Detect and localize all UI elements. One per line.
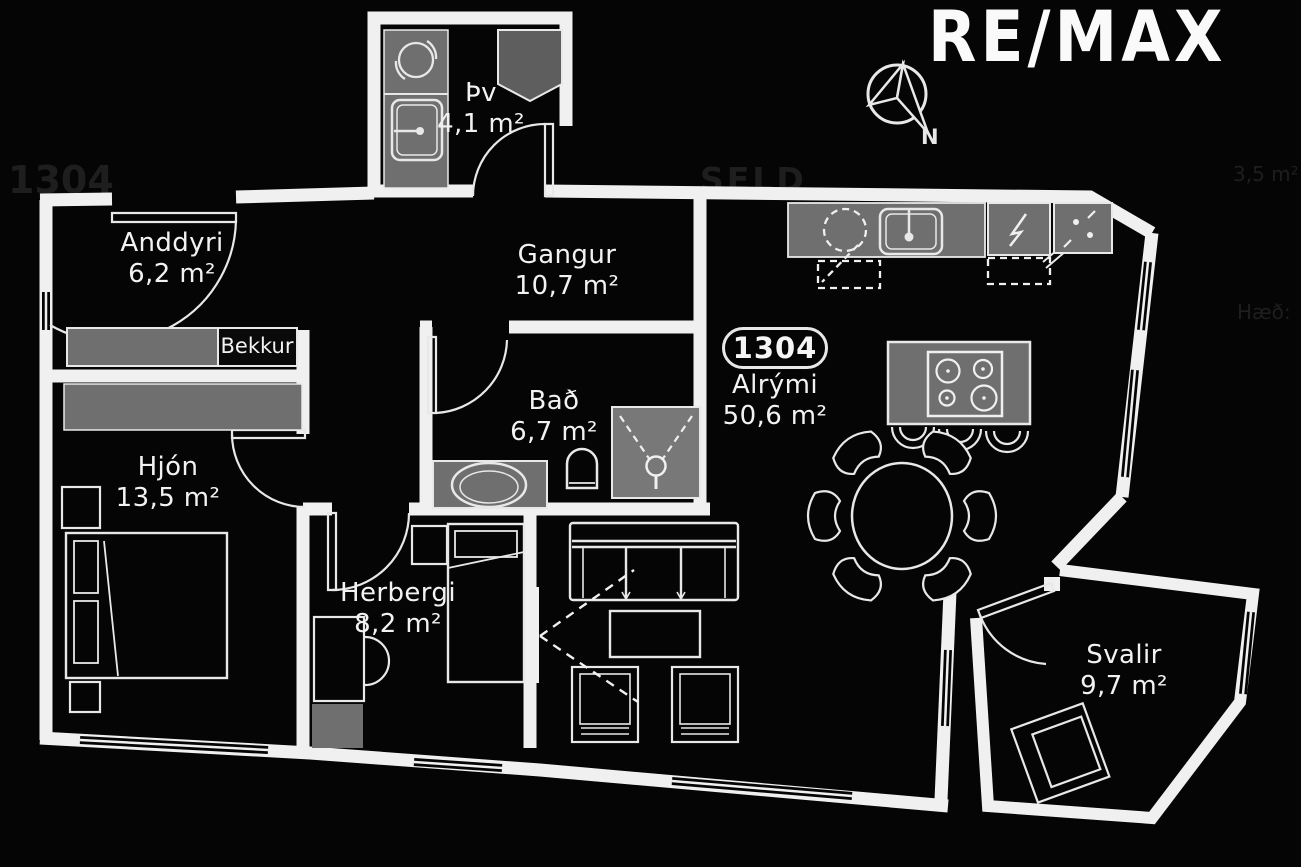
living-room-furniture	[533, 523, 738, 742]
oven	[988, 203, 1050, 255]
bedroom-cabinet	[312, 704, 363, 748]
bedroom-furniture	[312, 524, 524, 748]
bedroom-door-leaf	[328, 513, 336, 590]
laundry-wardrobe	[498, 30, 562, 101]
laundry-door-arc	[473, 124, 545, 196]
compass-north-label: N	[921, 125, 939, 149]
tv	[533, 587, 539, 683]
master-bedroom-furniture	[62, 487, 227, 712]
entry-door-leaf	[112, 213, 236, 222]
floor-plan-drawing	[0, 0, 1301, 867]
single-bed	[448, 524, 524, 682]
bathroom-door-arc	[436, 340, 507, 413]
balcony-door-leaf	[978, 583, 1054, 618]
compass-icon	[868, 64, 928, 133]
sofa	[570, 523, 738, 600]
kitchen-island	[888, 342, 1030, 452]
remax-logo: RE/MAX	[928, 0, 1227, 78]
bench-label: Bekkur	[221, 334, 294, 358]
vanity-sink	[433, 461, 547, 508]
master-door-leaf	[232, 430, 305, 438]
laundry-sink	[392, 100, 442, 160]
master-door-arc	[232, 434, 305, 507]
appliance	[1054, 203, 1112, 253]
floor-plan-page: 1304 SELD 3,5 m² Hæð:	[0, 0, 1301, 867]
balcony-walls	[976, 570, 1253, 818]
toilet	[567, 449, 597, 488]
shower	[612, 407, 700, 498]
master-wardrobe	[64, 384, 302, 430]
nightstand	[70, 682, 100, 712]
coffee-table	[610, 611, 700, 657]
desk	[314, 617, 364, 701]
desk-chair	[365, 637, 389, 685]
dining-table	[852, 463, 952, 569]
unit-number-badge: 1304	[722, 327, 828, 369]
armchair	[572, 667, 638, 742]
entry-door-arc	[50, 220, 236, 342]
nightstand	[62, 487, 100, 528]
nightstand	[412, 526, 447, 564]
armchair	[672, 667, 738, 742]
dining-set	[808, 425, 996, 607]
balcony-door-arc	[980, 615, 1046, 664]
bedroom-door-arc	[332, 513, 409, 590]
tv-sightlines	[540, 570, 638, 702]
balcony-lounge-chair	[1011, 703, 1109, 802]
double-bed	[66, 533, 227, 678]
kitchen-counter	[788, 203, 1112, 288]
laundry-fixtures	[384, 30, 562, 188]
bathroom-fixtures	[433, 407, 700, 508]
